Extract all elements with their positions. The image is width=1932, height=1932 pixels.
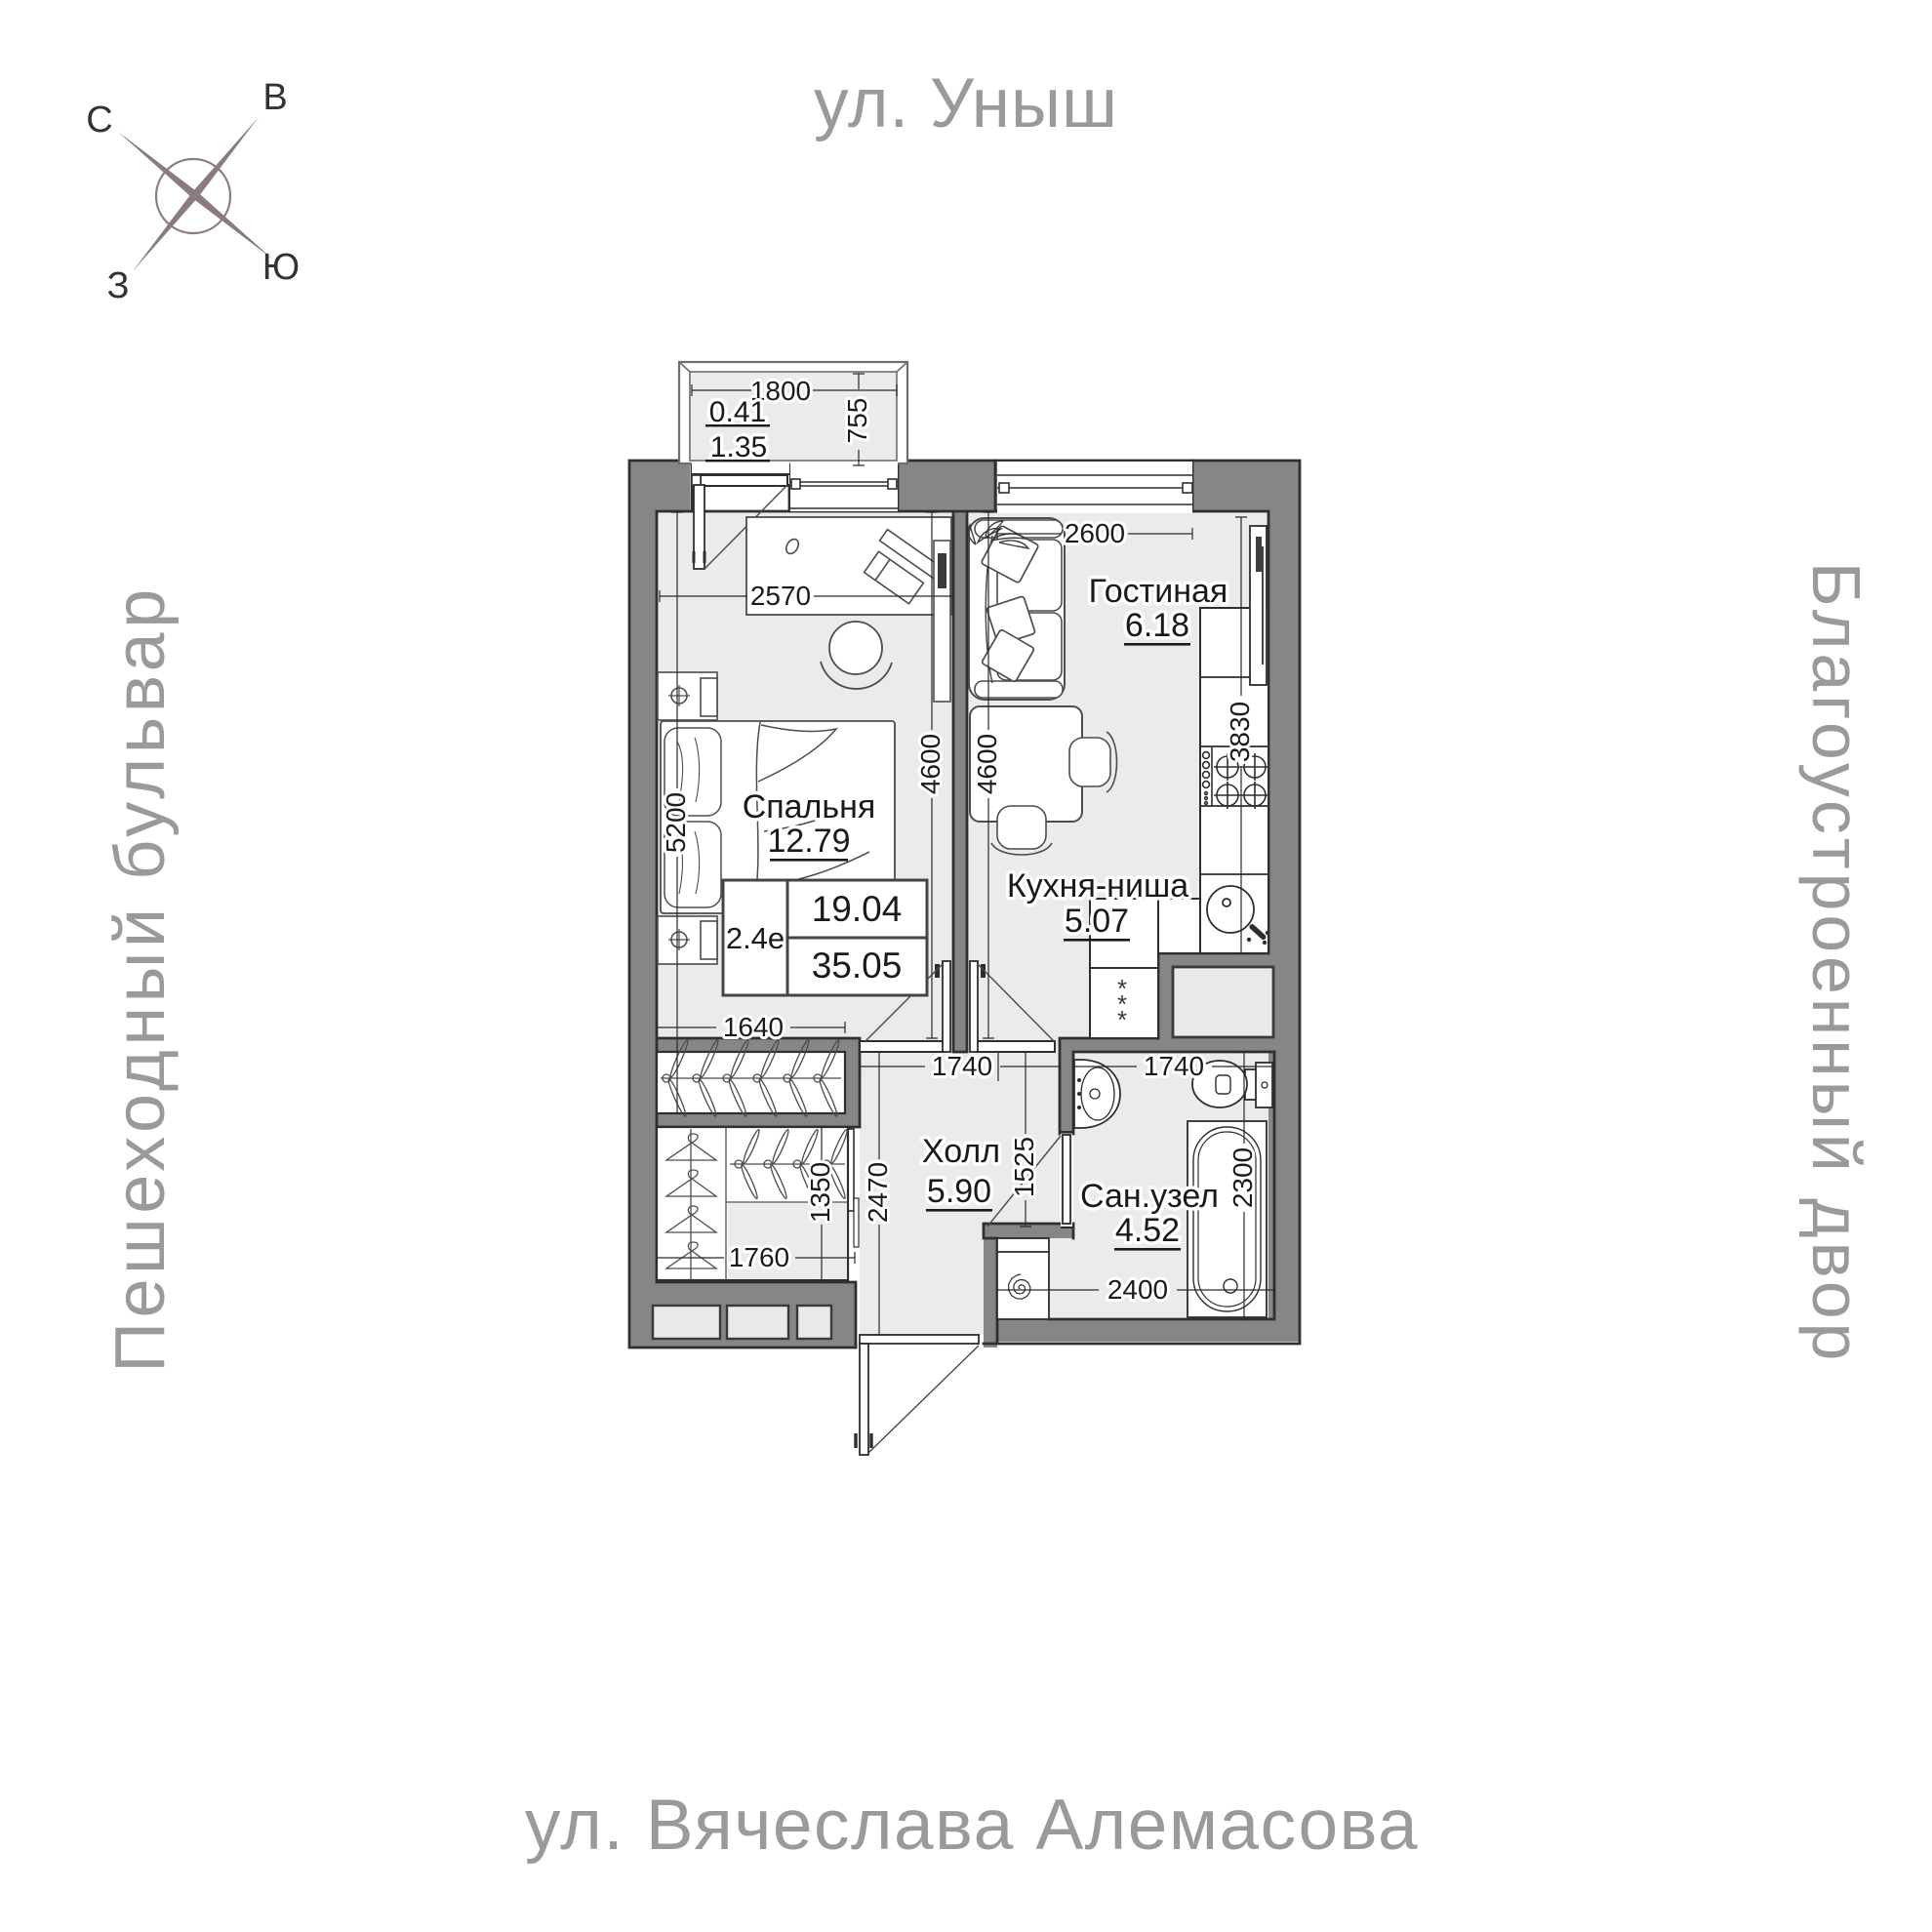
svg-text:1.35: 1.35 [710, 431, 767, 463]
svg-text:6.18: 6.18 [1125, 607, 1189, 644]
svg-text:1525: 1525 [1009, 1137, 1039, 1197]
svg-text:Благоустроенный двор: Благоустроенный двор [1798, 562, 1874, 1364]
svg-text:755: 755 [842, 398, 872, 444]
svg-text:1640: 1640 [723, 1012, 784, 1042]
svg-text:Спальня: Спальня [743, 788, 876, 825]
svg-text:0.41: 0.41 [709, 396, 766, 428]
svg-text:1740: 1740 [932, 1051, 992, 1081]
svg-text:5200: 5200 [661, 792, 691, 853]
svg-text:5.90: 5.90 [927, 1173, 991, 1210]
svg-text:Гостиная: Гостиная [1089, 573, 1228, 610]
svg-text:З: З [107, 265, 130, 306]
svg-text:35.05: 35.05 [812, 946, 903, 986]
svg-text:2.4е: 2.4е [726, 921, 785, 955]
svg-text:1760: 1760 [729, 1242, 789, 1272]
svg-text:3830: 3830 [1225, 702, 1255, 762]
svg-text:2300: 2300 [1228, 1147, 1258, 1208]
svg-text:19.04: 19.04 [812, 889, 903, 929]
svg-text:В: В [262, 77, 287, 118]
svg-text:ул. Вячеслава Алемасова: ул. Вячеслава Алемасова [525, 1786, 1419, 1865]
svg-text:4600: 4600 [972, 734, 1002, 794]
svg-text:Кухня-ниша: Кухня-ниша [1007, 867, 1188, 905]
svg-text:ул. Уныш: ул. Уныш [814, 65, 1118, 142]
svg-text:4600: 4600 [915, 734, 946, 794]
svg-text:2400: 2400 [1107, 1274, 1168, 1305]
svg-text:*: * [1117, 1005, 1127, 1034]
svg-text:Пешеходный бульвар: Пешеходный бульвар [101, 584, 180, 1373]
svg-text:2600: 2600 [1065, 518, 1125, 548]
svg-text:4.52: 4.52 [1115, 1212, 1180, 1249]
svg-text:Ю: Ю [262, 247, 300, 288]
svg-text:2470: 2470 [863, 1162, 893, 1223]
svg-text:Сан.узел: Сан.узел [1080, 1178, 1219, 1215]
svg-text:1350: 1350 [805, 1162, 835, 1223]
svg-text:Холл: Холл [922, 1133, 1000, 1170]
svg-text:1740: 1740 [1144, 1051, 1204, 1081]
svg-text:2570: 2570 [750, 581, 811, 611]
svg-text:12.79: 12.79 [767, 823, 850, 860]
svg-text:С: С [86, 100, 112, 141]
svg-text:5.07: 5.07 [1065, 903, 1129, 940]
